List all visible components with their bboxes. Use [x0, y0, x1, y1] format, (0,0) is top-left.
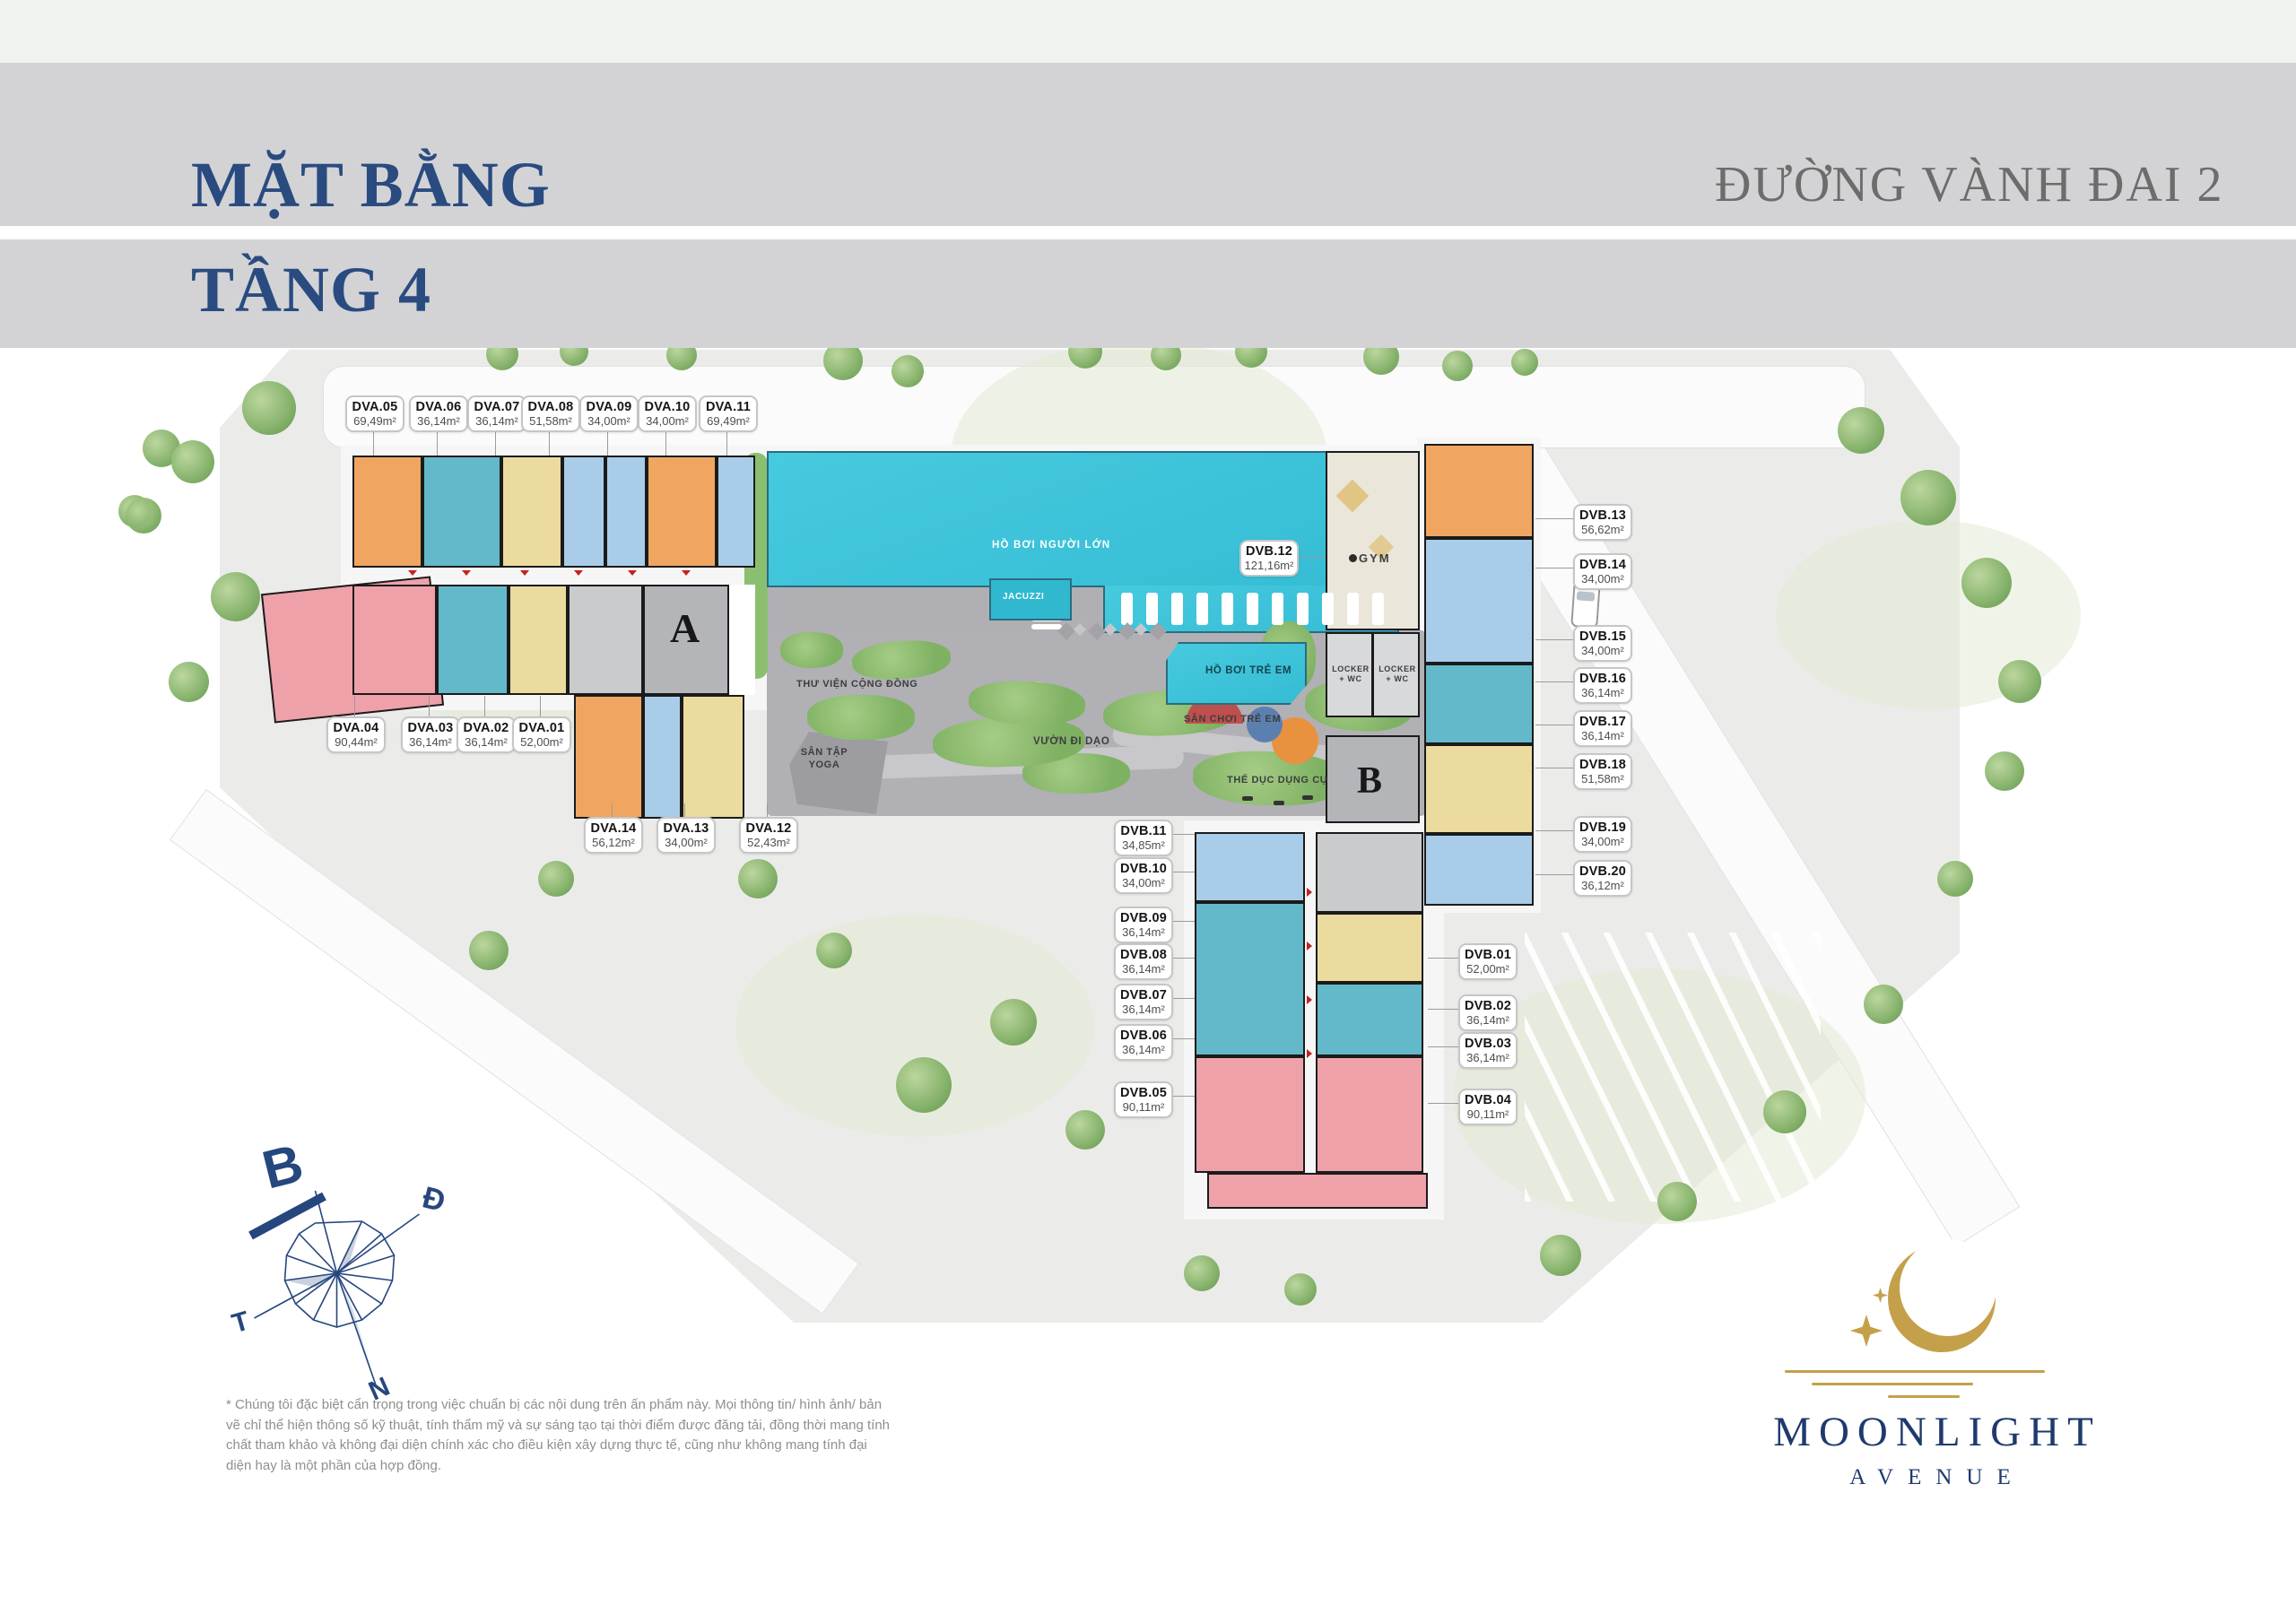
unit-id: DVA.02 — [458, 721, 514, 736]
compass-east-letter: Đ — [419, 1180, 448, 1219]
pool-lounger — [1121, 593, 1133, 625]
unit-label-dvb19: DVB.1934,00m² — [1573, 816, 1632, 853]
unit-area: 51,58m² — [523, 415, 578, 429]
leader-line — [1428, 958, 1458, 959]
tree — [1838, 407, 1884, 454]
adult-pool-basin — [767, 451, 1399, 587]
pool-lounger — [1372, 593, 1384, 625]
unit-area: 121,16m² — [1241, 560, 1297, 573]
tree — [1937, 861, 1973, 897]
yoga-pad — [789, 732, 888, 814]
entry-marker — [1307, 995, 1317, 1004]
tower-b-label: B — [1357, 762, 1382, 800]
entry-marker — [520, 570, 529, 580]
unit-id: DVA.03 — [403, 721, 458, 736]
unit-area: 36,14m² — [1116, 1003, 1171, 1017]
playground-label: SÂN CHƠI TRẺ EM — [1184, 714, 1281, 726]
unit-id: DVA.04 — [328, 721, 384, 736]
unit-id: DVB.17 — [1575, 715, 1631, 730]
unit-label-dvb10: DVB.1034,00m² — [1114, 857, 1173, 894]
unit-area: 69,49m² — [700, 415, 756, 429]
unit-area: 34,85m² — [1116, 839, 1171, 853]
unit-id: DVA.11 — [700, 400, 756, 415]
apartment-unit-pink-bottom — [1207, 1173, 1428, 1209]
parking-stripes — [1525, 933, 1821, 1202]
unit-label-dvb13: DVB.1356,62m² — [1573, 504, 1632, 541]
apartment-unit — [1195, 902, 1305, 1056]
unit-id: DVA.14 — [586, 821, 641, 837]
gym-equipment-icon — [1274, 801, 1284, 805]
unit-label-dvb17: DVB.1736,14m² — [1573, 710, 1632, 747]
leader-line — [1295, 556, 1326, 557]
unit-label-dva14: DVA.1456,12m² — [584, 817, 643, 854]
tree — [1540, 1235, 1581, 1276]
unit-label-dva10: DVA.1034,00m² — [638, 395, 697, 432]
unit-label-dva08: DVA.0851,58m² — [521, 395, 580, 432]
unit-label-dvb14: DVB.1434,00m² — [1573, 553, 1632, 590]
unit-area: 90,11m² — [1116, 1101, 1171, 1115]
tree — [1864, 985, 1903, 1024]
brand-subname: AVENUE — [1758, 1465, 2117, 1490]
unit-label-dvb02: DVB.0236,14m² — [1458, 994, 1518, 1031]
tree — [1900, 470, 1956, 525]
unit-area: 56,62m² — [1575, 524, 1631, 537]
tree — [1998, 660, 2041, 703]
unit-id: DVA.09 — [581, 400, 637, 415]
pool-lounger — [1146, 593, 1158, 625]
unit-id: DVB.09 — [1116, 911, 1171, 926]
tree — [896, 1057, 952, 1113]
leader-line — [1170, 872, 1195, 872]
unit-area: 36,14m² — [1116, 926, 1171, 940]
pool-lounger — [1196, 593, 1208, 625]
unit-area: 36,14m² — [403, 736, 458, 750]
tree — [738, 859, 778, 898]
unit-id: DVB.07 — [1116, 988, 1171, 1003]
gym-equipment-icon — [1242, 796, 1253, 801]
unit-label-dvb05: DVB.0590,11m² — [1114, 1081, 1173, 1118]
unit-area: 52,00m² — [514, 736, 570, 750]
unit-id: DVB.02 — [1460, 999, 1516, 1014]
leader-line — [1428, 1009, 1458, 1010]
tree — [469, 931, 509, 970]
unit-id: DVB.18 — [1575, 758, 1631, 773]
unit-area: 36,14m² — [1460, 1052, 1516, 1065]
unit-label-dva05: DVA.0569,49m² — [345, 395, 404, 432]
sparkle-icon-large — [1850, 1315, 1883, 1347]
apartment-unit — [1316, 983, 1423, 1056]
leader-line — [1535, 768, 1573, 768]
unit-id: DVB.06 — [1116, 1028, 1171, 1044]
gym-label: GYM — [1349, 551, 1391, 566]
apartment-unit — [1424, 538, 1534, 664]
unit-area: 34,00m² — [1116, 877, 1171, 890]
unit-id: DVB.08 — [1116, 948, 1171, 963]
leader-line — [429, 696, 430, 716]
page-title-line2: TẦNG 4 — [191, 257, 431, 322]
apartment-unit — [1316, 913, 1423, 983]
garden-bed — [780, 632, 843, 668]
unit-label-dvb01: DVB.0152,00m² — [1458, 943, 1518, 980]
unit-label-dva11: DVA.1169,49m² — [699, 395, 758, 432]
unit-id: DVB.20 — [1575, 864, 1631, 880]
unit-id: DVB.01 — [1460, 948, 1516, 963]
leader-line — [1170, 921, 1195, 922]
unit-area: 51,58m² — [1575, 773, 1631, 786]
compass-fill-2 — [285, 1273, 337, 1288]
tree — [169, 662, 209, 702]
unit-area: 36,14m² — [1575, 687, 1631, 700]
unit-id: DVA.07 — [469, 400, 525, 415]
entry-marker — [1307, 888, 1317, 897]
entry-marker — [1307, 1049, 1317, 1058]
apartment-unit — [568, 585, 643, 695]
unit-id: DVB.10 — [1116, 862, 1171, 877]
tree — [1961, 558, 2012, 608]
apartment-unit — [1424, 664, 1534, 744]
unit-area: 36,14m² — [411, 415, 466, 429]
entry-marker — [628, 570, 637, 580]
compass-north-letter: B — [257, 1133, 309, 1200]
gym-label-text: GYM — [1359, 551, 1391, 565]
tree — [990, 999, 1037, 1046]
unit-area: 69,49m² — [347, 415, 403, 429]
compass-west-letter: T — [229, 1306, 253, 1339]
locker-label-2: LOCKER + WC — [1376, 664, 1419, 685]
pool-lounger — [1297, 593, 1309, 625]
unit-area: 52,43m² — [741, 837, 796, 850]
leader-line — [1428, 1103, 1458, 1104]
page: HỒ BƠI NGƯỜI LỚN JACUZZI HỒ BƠI TRẺ EM S… — [0, 0, 2296, 1623]
page-title-line1: MẶT BẰNG — [191, 152, 551, 217]
leader-line — [1170, 1038, 1195, 1039]
unit-area: 36,14m² — [1116, 963, 1171, 976]
garden-bed — [807, 695, 915, 740]
apartment-unit — [643, 695, 682, 819]
unit-id: DVA.06 — [411, 400, 466, 415]
apartment-unit — [717, 456, 755, 568]
tree — [171, 440, 214, 483]
entry-marker — [1307, 942, 1317, 950]
apartment-unit — [729, 585, 755, 695]
gym-equipment-label: THỂ DỤC DỤNG CỤ — [1227, 775, 1327, 787]
apartment-unit — [422, 456, 501, 568]
pool-lounger — [1347, 593, 1359, 625]
tree — [126, 498, 161, 534]
entry-marker — [462, 570, 471, 580]
unit-id: DVB.12 — [1241, 544, 1297, 560]
leader-line — [684, 803, 685, 817]
apartment-unit — [437, 585, 509, 695]
apartment-unit — [1316, 832, 1423, 913]
yoga-label: SÂN TẬP YOGA — [793, 747, 856, 772]
unit-label-dvb12: DVB.12121,16m² — [1239, 540, 1299, 577]
leader-line — [354, 696, 355, 716]
unit-label-dvb11: DVB.1134,85m² — [1114, 820, 1173, 856]
leader-line — [1428, 1046, 1458, 1047]
reflection-line-3 — [1888, 1395, 1960, 1398]
leader-line — [540, 696, 541, 716]
leader-line — [1170, 1096, 1195, 1097]
road-label: ĐƯỜNG VÀNH ĐAI 2 — [1715, 160, 2224, 210]
leader-line — [1535, 518, 1573, 519]
entry-marker — [574, 570, 583, 580]
apartment-unit — [605, 456, 647, 568]
unit-area: 34,00m² — [1575, 573, 1631, 586]
unit-label-dvb08: DVB.0836,14m² — [1114, 943, 1173, 980]
apartment-unit — [647, 456, 717, 568]
tree — [891, 355, 924, 387]
reflection-line-2 — [1812, 1383, 1973, 1385]
apartment-unit — [1195, 1056, 1305, 1173]
apartment-unit — [562, 456, 605, 568]
pool-lounger — [1171, 593, 1183, 625]
pool-lounger — [1272, 593, 1283, 625]
kettlebell-icon — [1349, 554, 1357, 562]
pool-lounger — [1222, 593, 1233, 625]
pool-lounger — [1247, 593, 1258, 625]
tree — [211, 572, 260, 621]
tower-a-label: A — [670, 608, 700, 649]
unit-area: 36,14m² — [458, 736, 514, 750]
tree — [1657, 1182, 1697, 1221]
unit-label-dvb03: DVB.0336,14m² — [1458, 1032, 1518, 1069]
unit-id: DVB.03 — [1460, 1037, 1516, 1052]
leader-line — [767, 803, 768, 817]
unit-label-dvb09: DVB.0936,14m² — [1114, 907, 1173, 943]
unit-id: DVB.04 — [1460, 1093, 1516, 1108]
unit-id: DVB.15 — [1575, 629, 1631, 645]
gym-equipment-icon — [1302, 795, 1313, 800]
unit-id: DVB.05 — [1116, 1086, 1171, 1101]
unit-area: 36,14m² — [469, 415, 525, 429]
unit-id: DVA.12 — [741, 821, 796, 837]
unit-area: 90,44m² — [328, 736, 384, 750]
unit-area: 52,00m² — [1460, 963, 1516, 976]
unit-area: 34,00m² — [1575, 836, 1631, 849]
unit-area: 34,00m² — [1575, 645, 1631, 658]
unit-label-dvb15: DVB.1534,00m² — [1573, 625, 1632, 662]
compass-rose: B Đ T N — [221, 1128, 458, 1408]
tree — [1065, 1110, 1105, 1150]
unit-label-dva03: DVA.0336,14m² — [401, 716, 460, 753]
pool-lounger — [1322, 593, 1334, 625]
leader-line — [1170, 998, 1195, 999]
disclaimer-text: * Chúng tôi đặc biệt cẩn trọng trong việ… — [226, 1395, 894, 1476]
adult-pool-label: HỒ BƠI NGƯỜI LỚN — [992, 539, 1110, 551]
locker-label-1: LOCKER + WC — [1329, 664, 1372, 685]
unit-label-dvb20: DVB.2036,12m² — [1573, 860, 1632, 897]
apartment-unit — [352, 585, 437, 695]
car-windshield — [1577, 591, 1596, 601]
apartment-unit — [682, 695, 744, 819]
leader-line — [484, 696, 485, 716]
leader-line — [1535, 725, 1573, 725]
unit-label-dvb16: DVB.1636,14m² — [1573, 667, 1632, 704]
apartment-unit — [501, 456, 562, 568]
entry-marker — [682, 570, 691, 580]
unit-area: 34,00m² — [639, 415, 695, 429]
unit-id: DVA.05 — [347, 400, 403, 415]
top-margin-strip — [0, 0, 2296, 63]
deck-lounger — [1031, 624, 1062, 629]
unit-id: DVA.01 — [514, 721, 570, 736]
moon-icon-cut — [1900, 1239, 1996, 1336]
apartment-unit — [1424, 834, 1534, 906]
unit-area: 36,12m² — [1575, 880, 1631, 893]
apartment-unit — [509, 585, 568, 695]
jacuzzi-label: JACUZZI — [1003, 592, 1044, 603]
unit-label-dva13: DVA.1334,00m² — [657, 817, 716, 854]
unit-label-dva12: DVA.1252,43m² — [739, 817, 798, 854]
unit-label-dva04: DVA.0490,44m² — [326, 716, 386, 753]
apartment-unit — [574, 695, 643, 819]
unit-label-dva06: DVA.0636,14m² — [409, 395, 468, 432]
sparkle-icon-small — [1873, 1288, 1888, 1303]
reflection-line-1 — [1785, 1370, 2045, 1373]
walking-garden-label: VƯỜN ĐI DẠO — [1033, 735, 1109, 748]
kids-pool-label: HỒ BƠI TRẺ EM — [1205, 664, 1291, 677]
unit-id: DVA.08 — [523, 400, 578, 415]
unit-id: DVB.11 — [1116, 824, 1171, 839]
unit-id: DVA.13 — [658, 821, 714, 837]
tree — [1184, 1255, 1220, 1291]
unit-id: DVA.10 — [639, 400, 695, 415]
unit-label-dvb04: DVB.0490,11m² — [1458, 1089, 1518, 1125]
tree — [242, 381, 296, 435]
unit-id: DVB.16 — [1575, 672, 1631, 687]
leader-line — [1535, 874, 1573, 875]
tree — [816, 933, 852, 968]
brand-name: MOONLIGHT — [1758, 1408, 2117, 1456]
unit-area: 34,00m² — [658, 837, 714, 850]
leader-line — [1535, 830, 1573, 831]
entry-marker — [408, 570, 417, 580]
unit-label-dva09: DVA.0934,00m² — [579, 395, 639, 432]
tree — [1511, 349, 1538, 376]
leader-line — [1170, 834, 1195, 835]
leader-line — [1535, 568, 1573, 568]
tree — [1763, 1090, 1806, 1133]
library-label: THƯ VIỆN CỘNG ĐỒNG — [796, 679, 918, 691]
leader-line — [1170, 958, 1195, 959]
apartment-unit — [352, 456, 422, 568]
unit-area: 36,14m² — [1116, 1044, 1171, 1057]
unit-label-dvb06: DVB.0636,14m² — [1114, 1024, 1173, 1061]
unit-area: 56,12m² — [586, 837, 641, 850]
leader-line — [612, 803, 613, 817]
unit-area: 90,11m² — [1460, 1108, 1516, 1122]
unit-area: 36,14m² — [1460, 1014, 1516, 1028]
compass-north-bar — [251, 1196, 325, 1236]
unit-area: 34,00m² — [581, 415, 637, 429]
apartment-unit — [1424, 444, 1534, 538]
apartment-unit — [1424, 744, 1534, 834]
tree — [1985, 751, 2024, 791]
unit-label-dva02: DVA.0236,14m² — [457, 716, 516, 753]
unit-label-dvb07: DVB.0736,14m² — [1114, 984, 1173, 1020]
unit-id: DVB.13 — [1575, 508, 1631, 524]
apartment-unit — [1195, 832, 1305, 902]
unit-id: DVB.19 — [1575, 820, 1631, 836]
leader-line — [1535, 681, 1573, 682]
unit-label-dva01: DVA.0152,00m² — [512, 716, 571, 753]
leader-line — [1535, 639, 1573, 640]
unit-id: DVB.14 — [1575, 558, 1631, 573]
tree — [1442, 351, 1473, 381]
moonlight-logo: MOONLIGHT AVENUE — [1758, 1239, 2117, 1522]
tree — [538, 861, 574, 897]
unit-area: 36,14m² — [1575, 730, 1631, 743]
unit-label-dva07: DVA.0736,14m² — [467, 395, 526, 432]
tree — [1284, 1273, 1317, 1306]
unit-label-dvb18: DVB.1851,58m² — [1573, 753, 1632, 790]
apartment-unit — [1316, 1056, 1423, 1173]
